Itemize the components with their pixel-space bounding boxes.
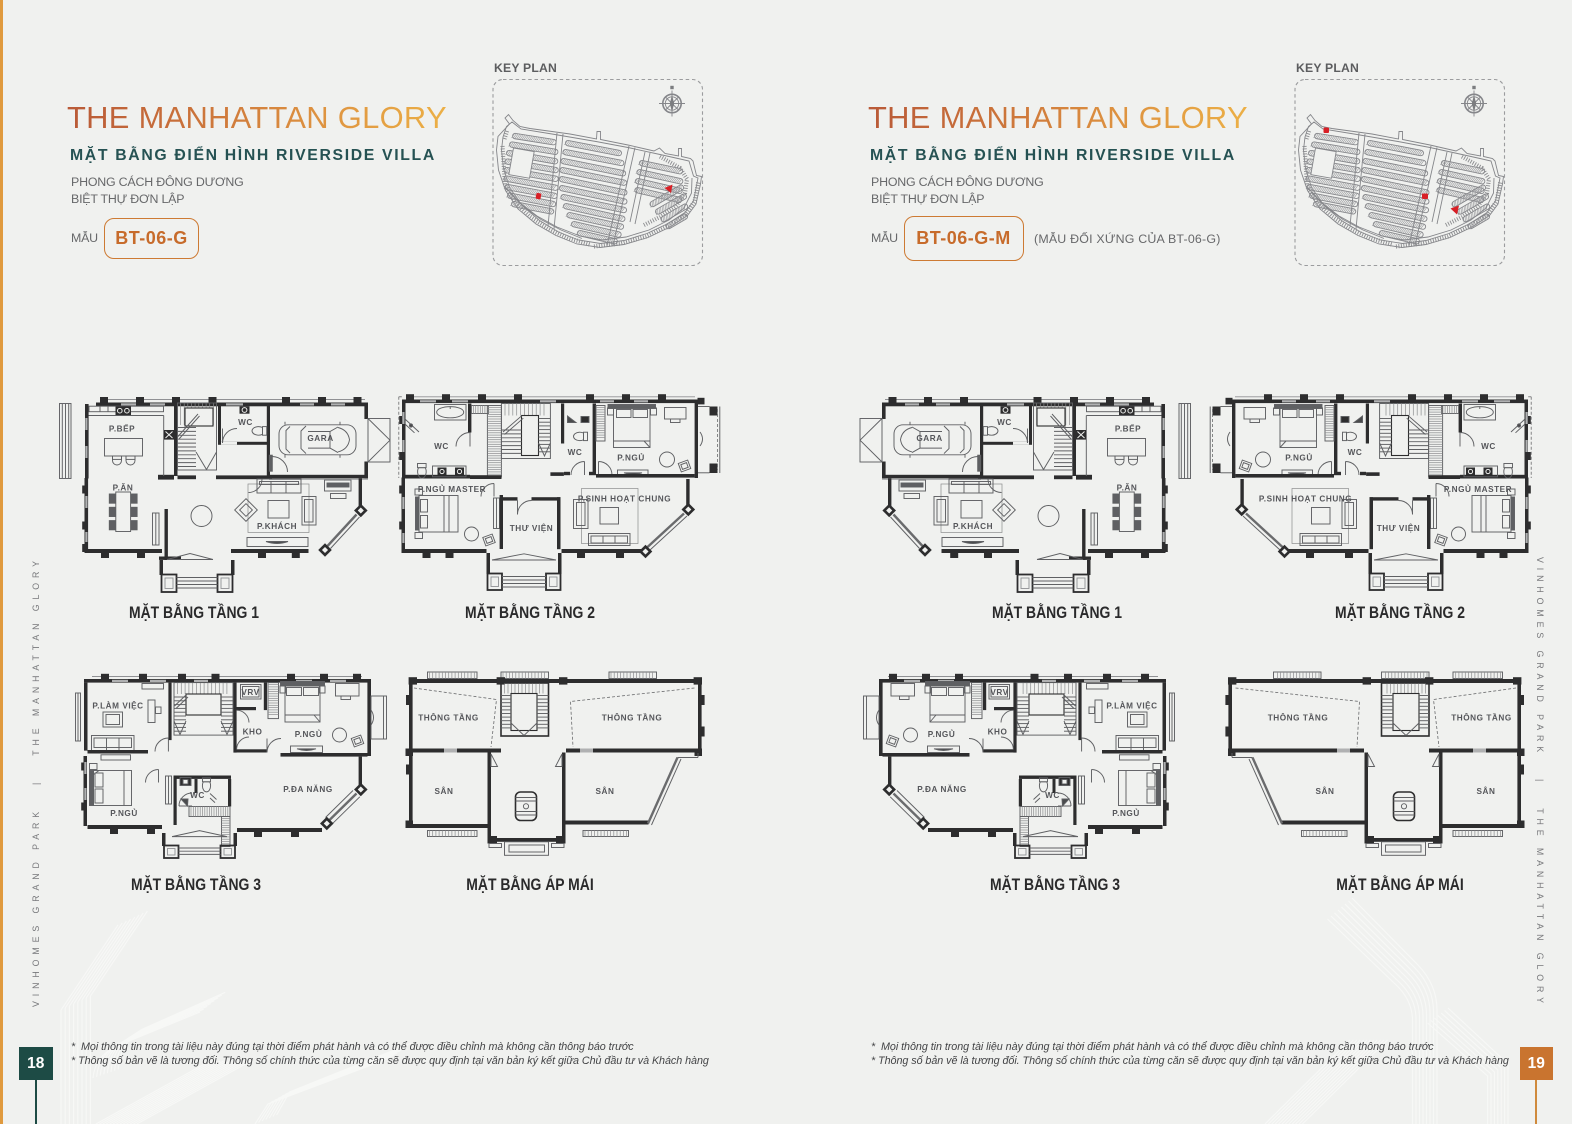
svg-text:THÔNG TẦNG: THÔNG TẦNG bbox=[1451, 712, 1512, 723]
svg-text:WC: WC bbox=[1481, 442, 1496, 451]
svg-text:SÂN: SÂN bbox=[1477, 785, 1496, 796]
svg-text:P.ĐA NĂNG: P.ĐA NĂNG bbox=[917, 784, 967, 794]
svg-text:SÂN: SÂN bbox=[1316, 785, 1335, 796]
svg-text:P.ĐA NĂNG: P.ĐA NĂNG bbox=[283, 784, 333, 794]
svg-text:KHO: KHO bbox=[988, 728, 1008, 737]
svg-text:THƯ VIỆN: THƯ VIỆN bbox=[1377, 522, 1421, 533]
svg-text:GARA: GARA bbox=[916, 434, 942, 443]
svg-text:WC: WC bbox=[190, 791, 205, 800]
svg-text:WC: WC bbox=[997, 418, 1012, 427]
svg-text:WC: WC bbox=[434, 442, 449, 451]
svg-text:WC: WC bbox=[1348, 448, 1363, 457]
svg-text:THÔNG TẦNG: THÔNG TẦNG bbox=[602, 712, 663, 723]
svg-text:P.KHÁCH: P.KHÁCH bbox=[257, 521, 297, 531]
svg-text:P.LÀM VIỆC: P.LÀM VIỆC bbox=[1106, 700, 1157, 711]
svg-text:P.NGỦ: P.NGỦ bbox=[1285, 452, 1313, 463]
svg-text:P.ĂN: P.ĂN bbox=[113, 483, 134, 493]
svg-text:P.NGỦ: P.NGỦ bbox=[1112, 807, 1140, 818]
svg-text:WC: WC bbox=[568, 448, 583, 457]
svg-text:KHO: KHO bbox=[243, 728, 263, 737]
svg-text:P.SINH HOẠT CHUNG: P.SINH HOẠT CHUNG bbox=[578, 495, 671, 504]
svg-text:GARA: GARA bbox=[307, 434, 333, 443]
svg-text:P.KHÁCH: P.KHÁCH bbox=[953, 521, 993, 531]
svg-text:P.NGỦ: P.NGỦ bbox=[295, 728, 323, 739]
svg-text:P.LÀM VIỆC: P.LÀM VIỆC bbox=[92, 700, 143, 711]
svg-text:P.ĂN: P.ĂN bbox=[1117, 483, 1138, 493]
svg-text:THÔNG TẦNG: THÔNG TẦNG bbox=[1268, 712, 1329, 723]
svg-text:SÂN: SÂN bbox=[435, 785, 454, 796]
svg-text:WC: WC bbox=[238, 418, 253, 427]
svg-text:THÔNG TẦNG: THÔNG TẦNG bbox=[418, 712, 479, 723]
svg-text:WC: WC bbox=[1045, 791, 1060, 800]
svg-text:P.NGỦ: P.NGỦ bbox=[110, 807, 138, 818]
svg-text:P.NGỦ: P.NGỦ bbox=[928, 728, 956, 739]
svg-text:P.NGỦ MASTER: P.NGỦ MASTER bbox=[1444, 483, 1512, 494]
svg-text:P.BẾP: P.BẾP bbox=[109, 424, 135, 434]
svg-text:THƯ VIỆN: THƯ VIỆN bbox=[510, 522, 554, 533]
svg-text:SÂN: SÂN bbox=[596, 785, 615, 796]
svg-text:P.NGỦ MASTER: P.NGỦ MASTER bbox=[418, 483, 486, 494]
svg-text:VRV: VRV bbox=[241, 688, 259, 697]
svg-text:P.NGỦ: P.NGỦ bbox=[617, 452, 645, 463]
svg-text:P.SINH HOẠT CHUNG: P.SINH HOẠT CHUNG bbox=[1259, 495, 1352, 504]
svg-text:P.BẾP: P.BẾP bbox=[1115, 424, 1141, 434]
svg-text:VRV: VRV bbox=[990, 688, 1008, 697]
